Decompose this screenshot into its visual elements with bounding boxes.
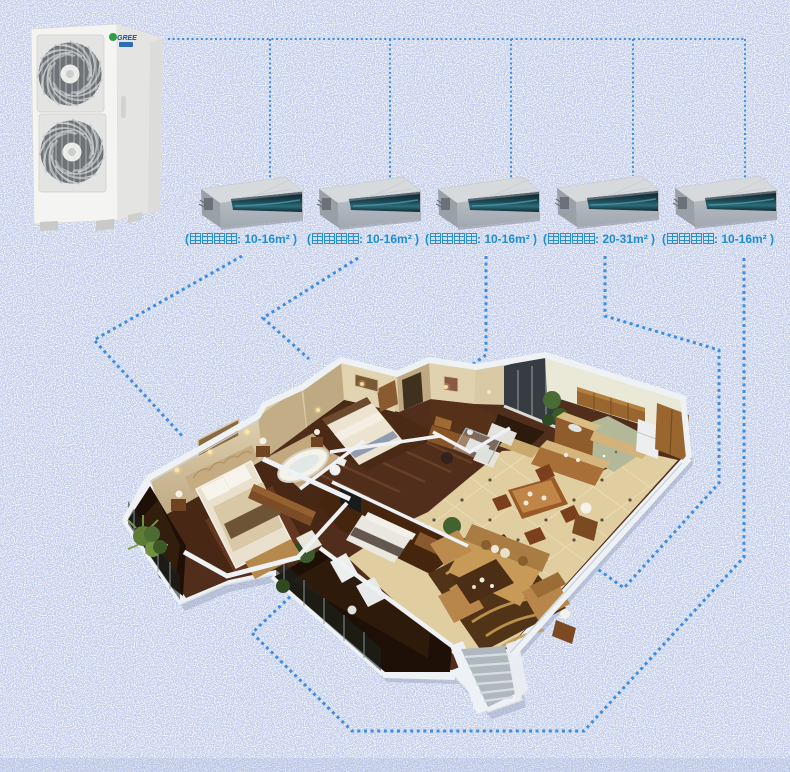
svg-text:GREE: GREE (117, 35, 137, 42)
